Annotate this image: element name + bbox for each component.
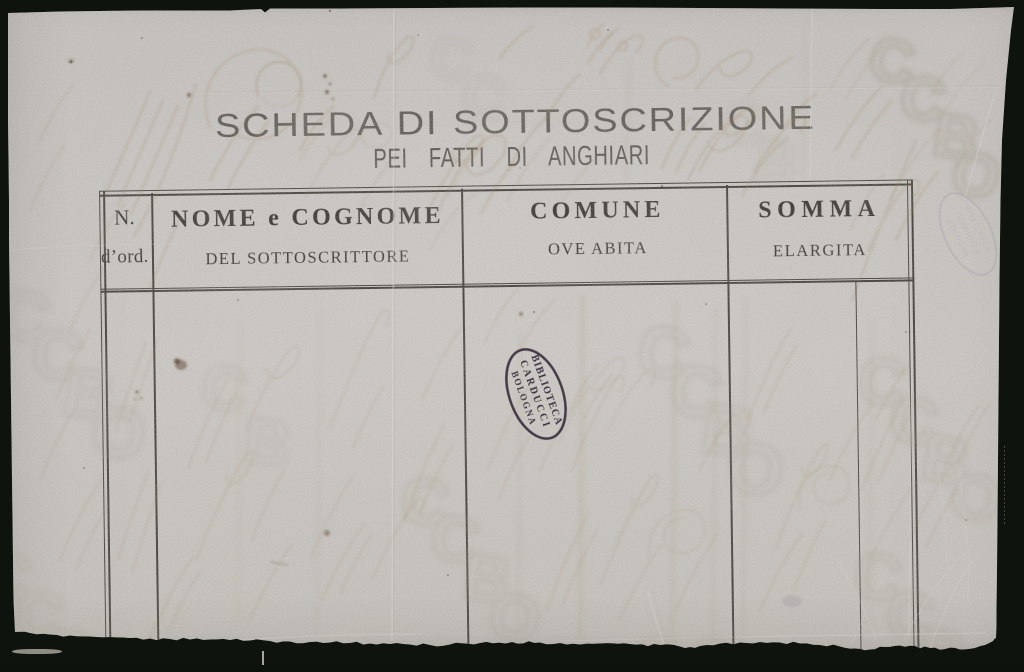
svg-text:O: O [945, 456, 1007, 537]
svg-text:O: O [941, 648, 1003, 665]
svg-text:O: O [484, 576, 546, 657]
